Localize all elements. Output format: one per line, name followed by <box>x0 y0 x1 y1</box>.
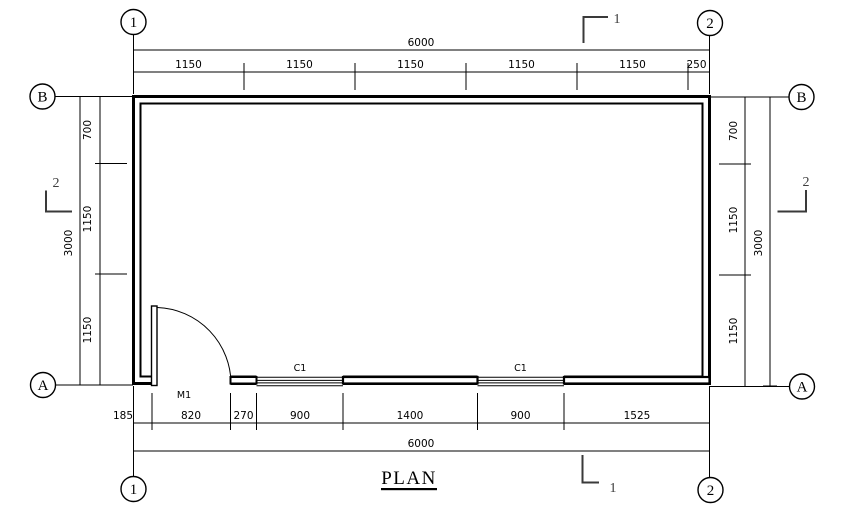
grid-bubble-label: 1 <box>130 15 138 31</box>
grid-bubble-label: 2 <box>706 16 714 32</box>
grid-bubble-label: A <box>38 378 49 394</box>
section-label: 2 <box>53 176 60 191</box>
dim-value: 1525 <box>624 410 651 422</box>
grid-bubble-label: A <box>797 380 808 396</box>
dim-value: 1150 <box>619 59 646 71</box>
grid-bubble-label: B <box>37 90 47 106</box>
grid-bubble-label: 1 <box>130 482 138 498</box>
grid-bubble-label: 2 <box>707 483 715 499</box>
title-block: PLAN <box>381 468 437 490</box>
wall-pier-right <box>564 377 710 384</box>
dim-value: 1150 <box>175 59 202 71</box>
dim-value: 270 <box>233 410 253 422</box>
drawing-sheet: C1 C1 M1 6000 115 <box>0 0 853 528</box>
window-label: C1 <box>294 363 307 374</box>
dim-value: 185 <box>113 410 133 422</box>
dim-value: 700 <box>728 121 740 141</box>
dim-value: 700 <box>82 120 94 140</box>
wall-pier-door-right <box>231 377 257 384</box>
dim-value: 1150 <box>82 206 94 233</box>
dim-value: 3000 <box>753 230 765 257</box>
door-leaf <box>152 306 158 386</box>
dim-value: 1150 <box>508 59 535 71</box>
section-label: 1 <box>614 12 621 27</box>
grid-bubble-label: B <box>796 90 806 106</box>
dim-value: 6000 <box>408 37 435 49</box>
dim-value: 1150 <box>82 317 94 344</box>
dim-value: 1150 <box>286 59 313 71</box>
dim-value: 1150 <box>397 59 424 71</box>
door-opening <box>152 372 231 388</box>
dim-value: 1150 <box>728 207 740 234</box>
dim-value: 1150 <box>728 318 740 345</box>
floor-plan-canvas: C1 C1 M1 6000 115 <box>0 0 853 528</box>
dim-value: 250 <box>686 59 706 71</box>
dim-value: 900 <box>290 410 310 422</box>
dim-value: 900 <box>510 410 530 422</box>
dim-value: 6000 <box>408 438 435 450</box>
door-label: M1 <box>177 390 191 401</box>
title-underline <box>381 488 437 490</box>
dim-value: 3000 <box>63 230 75 257</box>
dim-value: 1400 <box>397 410 424 422</box>
wall-pier-middle <box>343 377 478 384</box>
section-label: 2 <box>803 175 810 190</box>
drawing-title: PLAN <box>381 468 437 489</box>
window-label: C1 <box>514 363 527 374</box>
section-label: 1 <box>610 481 617 496</box>
dim-value: 820 <box>181 410 201 422</box>
